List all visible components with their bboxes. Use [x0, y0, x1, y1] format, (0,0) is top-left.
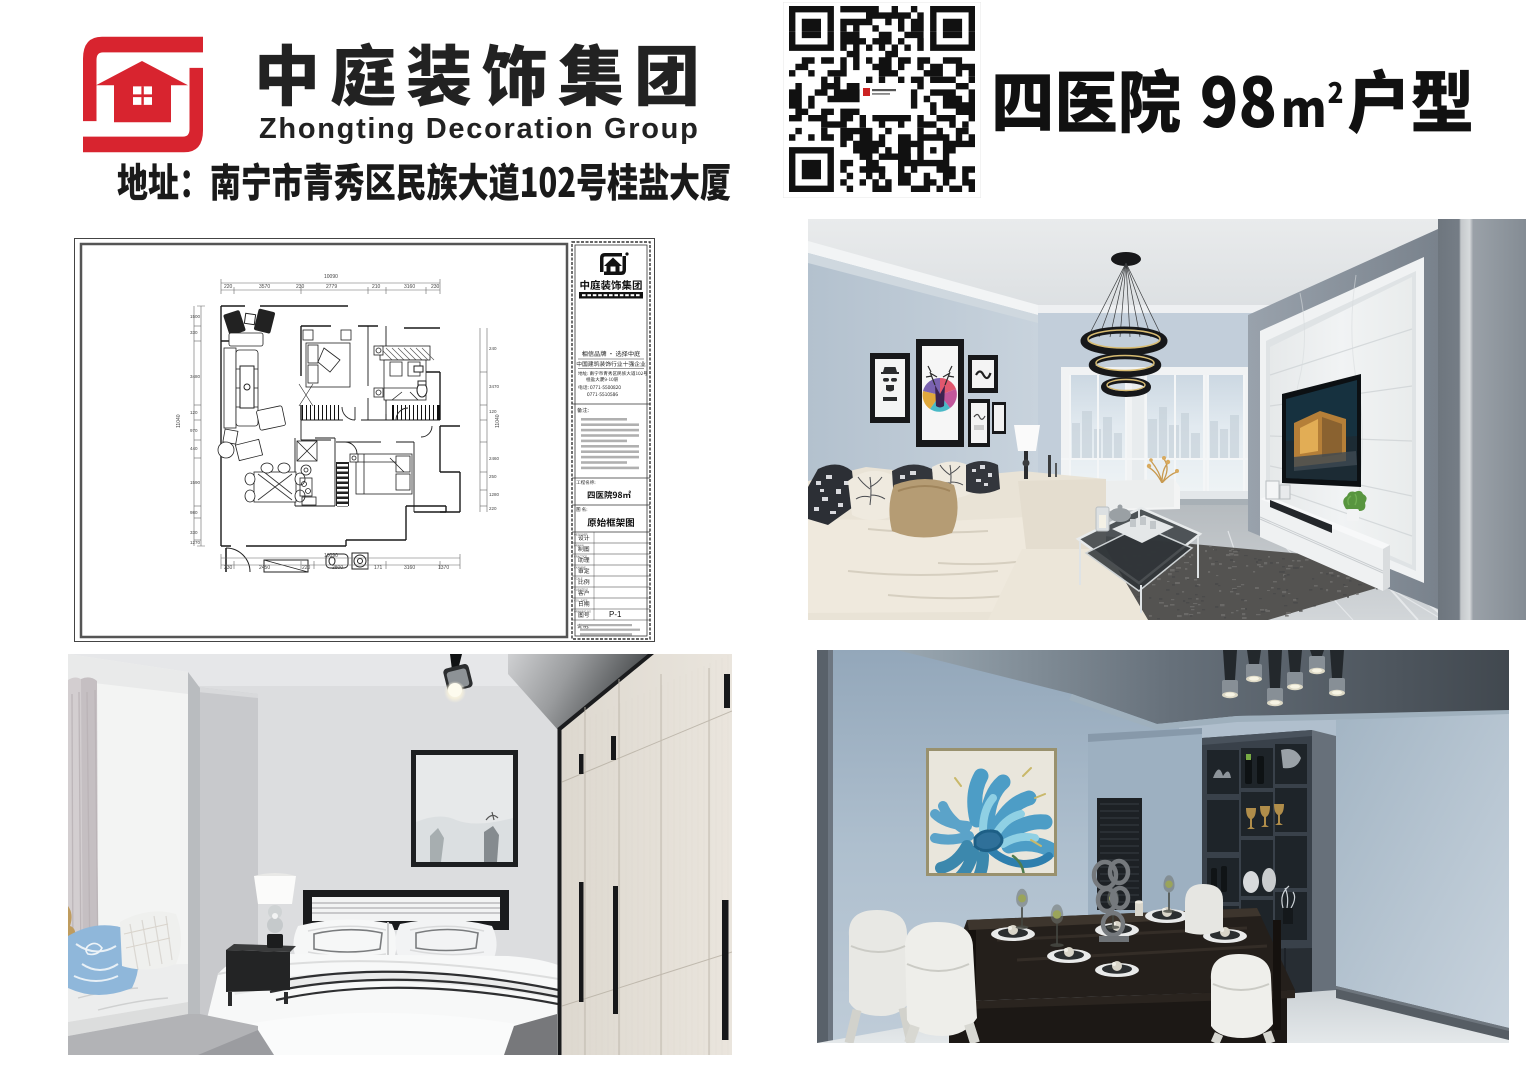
svg-text:DRAWING NO: DRAWING NO	[574, 609, 591, 613]
svg-text:11040: 11040	[495, 414, 501, 428]
svg-text:P-1: P-1	[609, 610, 622, 619]
svg-text:230: 230	[296, 284, 305, 290]
svg-text:220: 220	[302, 565, 311, 571]
svg-text:DRAWN: DRAWN	[574, 543, 584, 547]
svg-text:1370: 1370	[438, 565, 449, 571]
svg-text:11040: 11040	[176, 414, 182, 428]
svg-text:DESIGNER: DESIGNER	[574, 532, 588, 536]
svg-text:250: 250	[489, 474, 497, 479]
svg-text:3570: 3570	[259, 284, 270, 290]
svg-text:10090: 10090	[324, 274, 338, 280]
svg-text:230: 230	[431, 284, 440, 290]
svg-text:970: 970	[190, 428, 198, 433]
svg-text:CLIENTELE: CLIENTELE	[574, 587, 588, 591]
svg-text:440: 440	[190, 446, 198, 451]
svg-text:2460: 2460	[489, 456, 500, 461]
svg-text:COL. DATE: COL. DATE	[574, 598, 588, 602]
svg-text:230: 230	[224, 565, 233, 571]
svg-text:220: 220	[224, 284, 233, 290]
svg-text:10090: 10090	[324, 553, 338, 559]
svg-text:980: 980	[190, 510, 198, 515]
svg-text:120: 120	[489, 409, 497, 414]
svg-text:330: 330	[190, 530, 198, 535]
svg-text:220: 220	[489, 506, 497, 511]
svg-text:SCALE: SCALE	[574, 576, 583, 580]
svg-text:1590: 1590	[190, 480, 201, 485]
svg-text:1500: 1500	[190, 314, 201, 319]
svg-text:3470: 3470	[489, 384, 500, 389]
svg-text:PRACTICE: PRACTICE	[574, 554, 587, 558]
svg-text:2800: 2800	[332, 565, 343, 571]
svg-text:1280: 1280	[489, 492, 500, 497]
svg-text:2779: 2779	[326, 284, 337, 290]
svg-text:3160: 3160	[404, 284, 415, 290]
svg-text:2450: 2450	[259, 565, 270, 571]
svg-text:240: 240	[489, 346, 497, 351]
svg-text:120: 120	[190, 410, 198, 415]
svg-text:171: 171	[374, 565, 383, 571]
svg-text:330: 330	[190, 330, 198, 335]
svg-text:3160: 3160	[404, 565, 415, 571]
svg-text:1270: 1270	[190, 540, 201, 545]
svg-text:210: 210	[372, 284, 381, 290]
svg-text:3480: 3480	[190, 374, 201, 379]
svg-text:EXAMINE: EXAMINE	[574, 565, 586, 569]
